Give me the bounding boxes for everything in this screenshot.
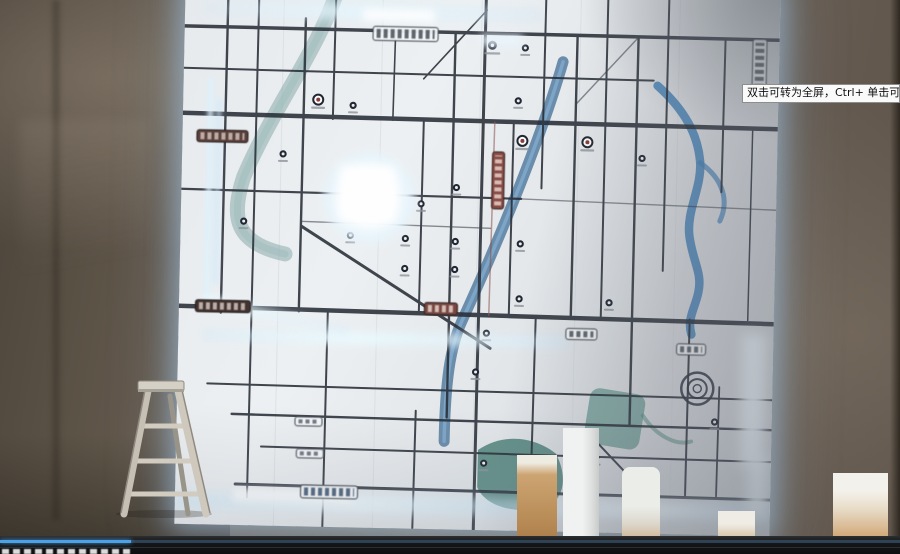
metro-line-badge [491,151,505,209]
road-label-badge [196,129,248,143]
road-label-badge [424,302,458,316]
road-label-badge [676,343,706,356]
step-ladder [112,376,216,518]
map-board [174,0,780,536]
road-label-badge [195,299,251,313]
progress-track[interactable] [0,540,900,543]
ring-road-landmark [681,372,714,405]
player-control-bar[interactable] [0,536,900,554]
road-label-badge [294,416,322,427]
road-label-badge [372,26,438,42]
fullscreen-tooltip: 双击可转为全屏，Ctrl+ 单击可转为 [742,84,900,103]
progress-played [0,540,131,543]
road-label-badge [300,484,358,499]
map-artwork [174,0,780,536]
truncated-caption-text [2,549,134,554]
road-label-badge [296,448,324,459]
video-frame[interactable]: 双击可转为全屏，Ctrl+ 单击可转为 [0,0,900,554]
player-bar-divider [0,547,900,548]
road-label-badge [565,328,597,341]
wall-light-patch [20,120,150,360]
road-network [174,0,780,536]
